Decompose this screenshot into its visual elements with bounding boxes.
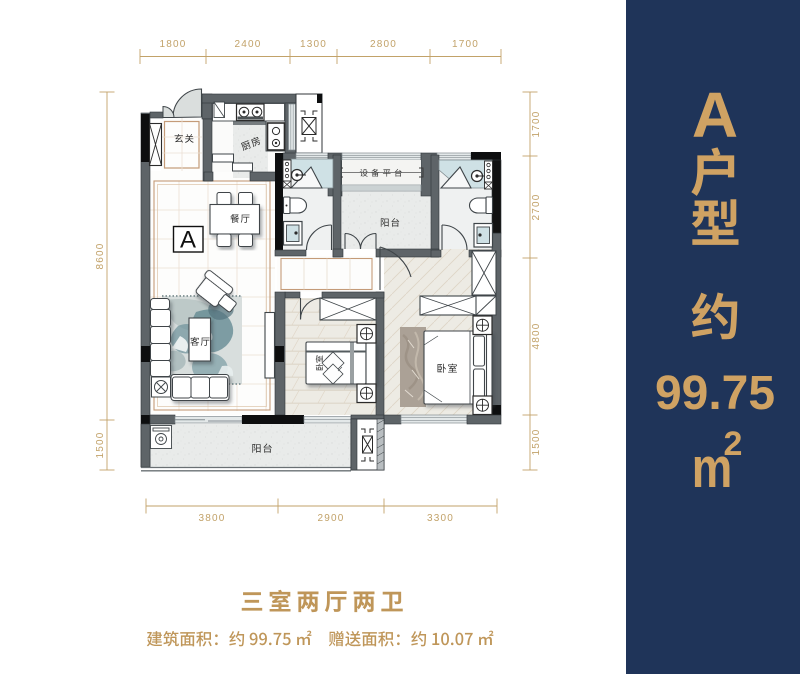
- svg-text:99.75: 99.75: [655, 367, 775, 420]
- svg-text:A: A: [180, 227, 196, 254]
- svg-text:1300: 1300: [300, 39, 327, 50]
- svg-text:4800: 4800: [531, 322, 542, 349]
- svg-text:2: 2: [724, 425, 743, 463]
- svg-text:1800: 1800: [159, 39, 186, 50]
- svg-text:1700: 1700: [452, 39, 479, 50]
- svg-text:3800: 3800: [198, 513, 225, 524]
- svg-text:A: A: [692, 79, 738, 151]
- svg-text:3300: 3300: [427, 513, 454, 524]
- svg-text:2900: 2900: [317, 513, 344, 524]
- svg-text:1500: 1500: [95, 431, 106, 458]
- svg-text:8600: 8600: [95, 242, 106, 269]
- svg-text:1500: 1500: [531, 428, 542, 455]
- svg-text:2400: 2400: [234, 39, 261, 50]
- svg-text:2800: 2800: [370, 39, 397, 50]
- svg-text:2700: 2700: [531, 193, 542, 220]
- svg-text:1700: 1700: [531, 110, 542, 137]
